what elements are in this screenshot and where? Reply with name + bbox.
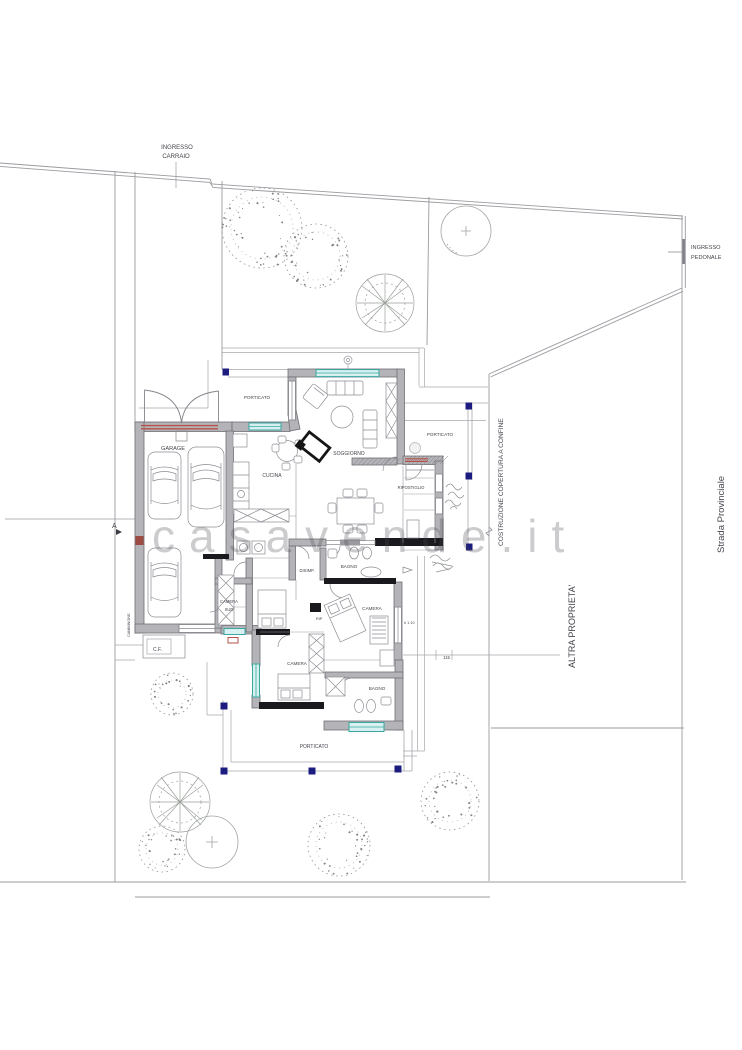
svg-text:INGRESSO: INGRESSO [691, 245, 721, 251]
svg-text:PORTICATO: PORTICATO [427, 432, 454, 437]
svg-text:PORTICATO: PORTICATO [244, 395, 271, 400]
svg-text:RIPOSTIGLIO: RIPOSTIGLIO [398, 485, 426, 490]
svg-text:CAMERA: CAMERA [287, 661, 308, 666]
svg-text:PEDONALE: PEDONALE [691, 255, 722, 261]
svg-text:CAMERA: CAMERA [220, 599, 238, 604]
svg-text:CAMMINONE: CAMMINONE [127, 613, 131, 637]
svg-text:C.F.: C.F. [153, 647, 162, 653]
svg-text:SOGGIORNO: SOGGIORNO [333, 451, 365, 457]
svg-text:DISIMP.: DISIMP. [299, 568, 314, 573]
svg-text:CAMERA: CAMERA [362, 606, 383, 611]
svg-text:CUCINA: CUCINA [262, 473, 282, 479]
svg-text:h 1.10: h 1.10 [404, 621, 415, 625]
svg-text:Strada Provinciale: Strada Provinciale [716, 476, 727, 553]
svg-text:INGRESSO: INGRESSO [161, 145, 193, 151]
svg-text:CARRAIO: CARRAIO [162, 154, 190, 160]
svg-text:GARAGE: GARAGE [161, 446, 185, 452]
svg-text:115: 115 [443, 655, 451, 660]
svg-text:BAGNO: BAGNO [369, 686, 386, 691]
svg-text:casavende.it: casavende.it [152, 510, 578, 562]
svg-text:ALTRA PROPRIETA': ALTRA PROPRIETA' [567, 584, 577, 668]
svg-text:BAGNO: BAGNO [341, 564, 358, 569]
svg-text:SUD: SUD [225, 607, 234, 612]
svg-text:PORTICATO: PORTICATO [300, 744, 329, 750]
svg-text:A: A [112, 523, 117, 530]
svg-text:RIP: RIP [316, 617, 323, 621]
